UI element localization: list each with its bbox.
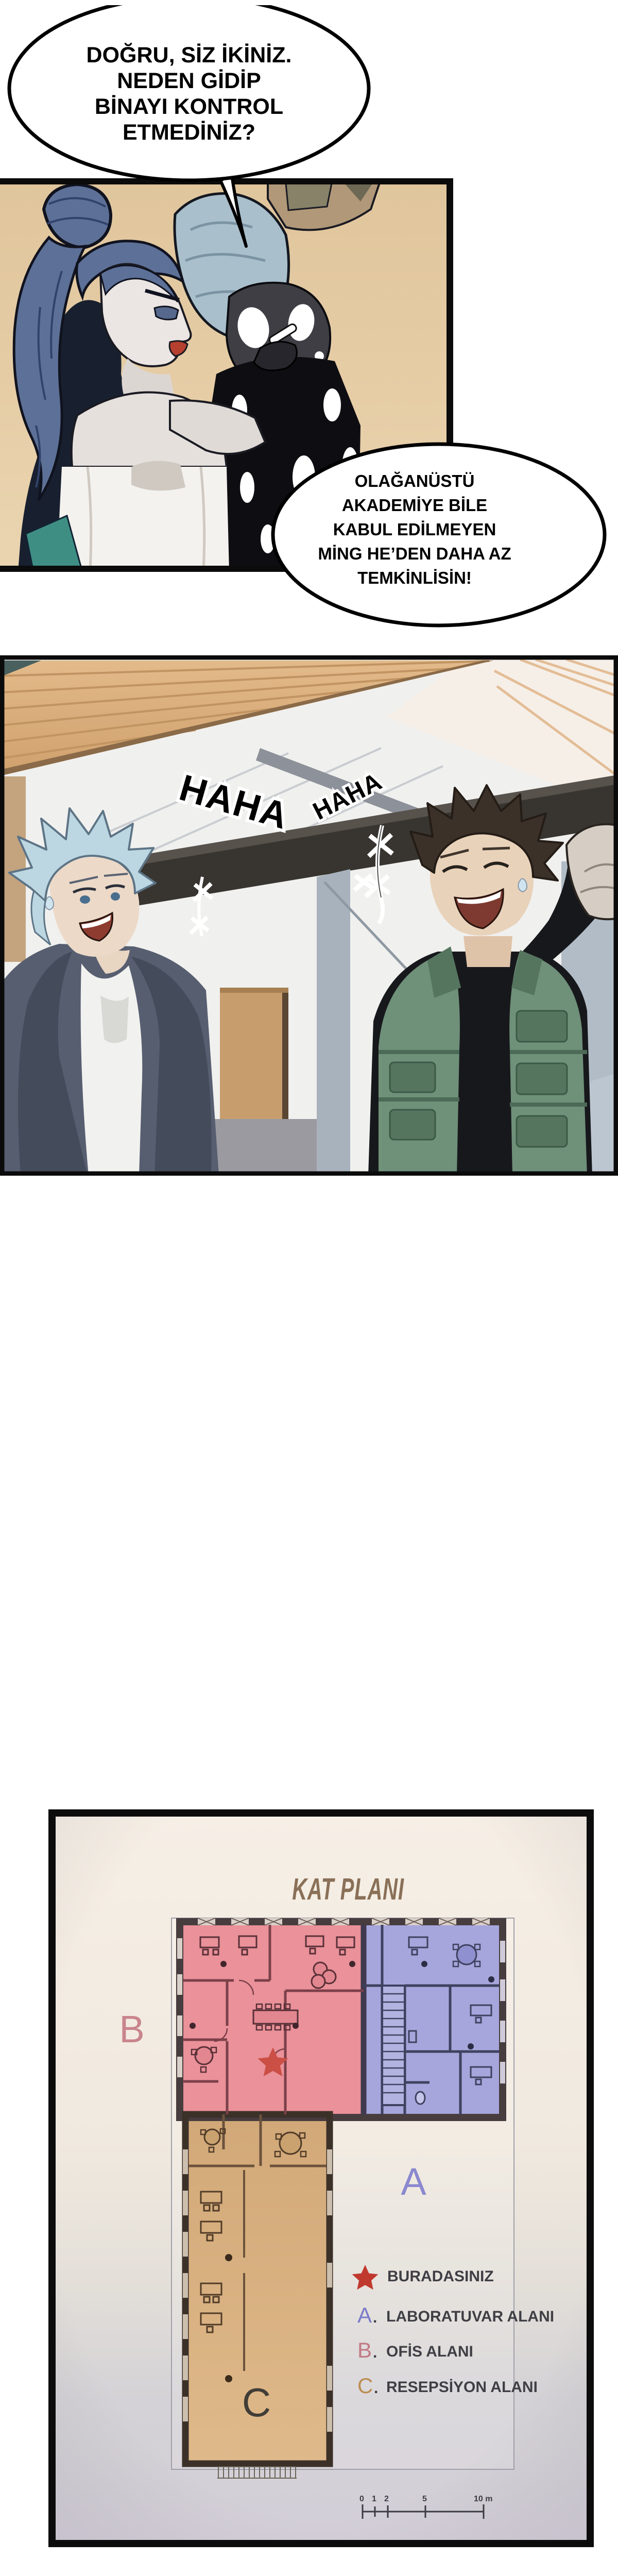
svg-text:LABORATUVAR ALANI: LABORATUVAR ALANI [386, 2308, 554, 2325]
svg-text:BURADASINIZ: BURADASINIZ [387, 2268, 494, 2285]
svg-text:RESEPSİYON ALANI: RESEPSİYON ALANI [386, 2379, 538, 2396]
svg-text:.: . [373, 2344, 377, 2361]
svg-text:KAT PLANI: KAT PLANI [292, 1872, 404, 1906]
svg-text:C: C [242, 2380, 271, 2425]
svg-text:10 m: 10 m [474, 2495, 492, 2503]
svg-text:.: . [374, 2380, 378, 2397]
svg-text:C: C [357, 2374, 373, 2398]
svg-text:.: . [373, 2309, 377, 2326]
svg-text:A: A [357, 2303, 372, 2327]
svg-text:2: 2 [384, 2495, 389, 2503]
svg-text:0: 0 [359, 2495, 364, 2503]
svg-text:A: A [401, 2160, 426, 2203]
svg-text:5: 5 [422, 2495, 427, 2503]
svg-text:B: B [119, 2008, 144, 2050]
svg-text:B: B [357, 2338, 372, 2362]
svg-text:1: 1 [372, 2495, 376, 2503]
svg-text:OFİS ALANI: OFİS ALANI [386, 2343, 473, 2360]
